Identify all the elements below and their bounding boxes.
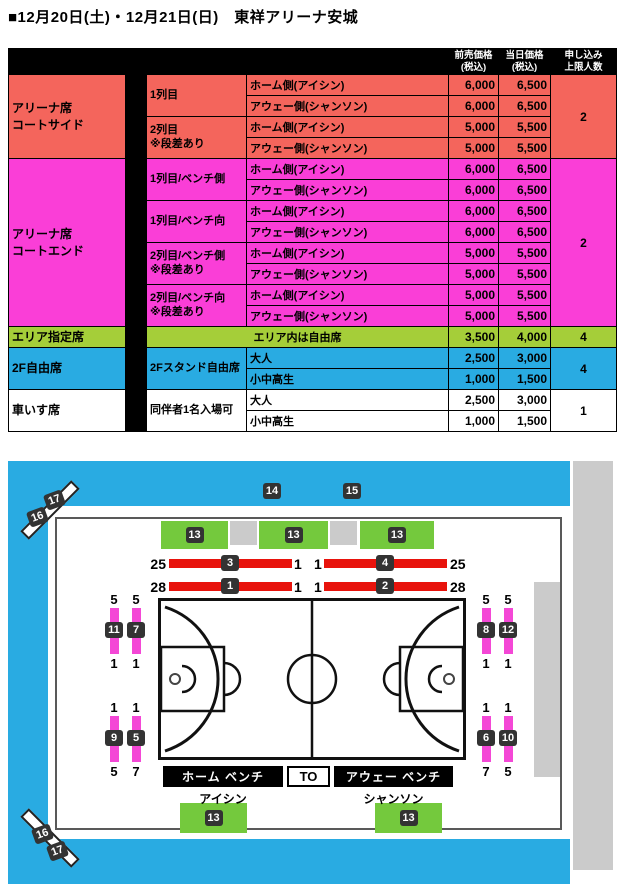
area-block-13: 13 [375, 803, 442, 833]
seat-badge-13: 13 [186, 527, 204, 543]
seat-count: 1 [314, 556, 322, 572]
stand-2f-top [8, 461, 570, 506]
seat-count: 1 [497, 656, 519, 671]
home-team-name: アイシン [163, 790, 283, 807]
seat-badge-6: 6 [477, 730, 495, 746]
seat-badge-11: 11 [105, 622, 123, 638]
area-block-13: 13 [161, 521, 228, 549]
basketball-court [158, 598, 466, 760]
seat-badge-1: 1 [221, 578, 239, 594]
gray-spacer [230, 521, 257, 545]
seat-badge-13: 13 [400, 810, 418, 826]
seat-count: 5 [497, 764, 519, 779]
seat-count: 1 [497, 700, 519, 715]
area-block-13: 13 [180, 803, 247, 833]
area-block-13: 13 [259, 521, 328, 549]
seat-badge-3: 3 [221, 555, 239, 571]
seat-count: 7 [475, 764, 497, 779]
seat-count: 5 [103, 592, 125, 607]
seat-count: 1 [314, 579, 322, 595]
seat-badge-13: 13 [388, 527, 406, 543]
area-block-13: 13 [360, 521, 434, 549]
gray-spacer [330, 521, 357, 545]
stand-2f-bottom [8, 839, 570, 884]
seat-count: 1 [125, 700, 147, 715]
seat-count: 5 [103, 764, 125, 779]
courtend-column-11: 5 11 1 [103, 592, 125, 672]
seat-count: 1 [475, 656, 497, 671]
courtend-column-9: 1 9 5 [103, 700, 125, 780]
right-stand-strip [573, 461, 613, 870]
seat-count: 5 [475, 592, 497, 607]
seat-badge-7: 7 [127, 622, 145, 638]
seat-count: 1 [294, 556, 302, 572]
home-bench: ホーム ベンチ [163, 766, 283, 787]
courtend-column-7: 5 7 1 [125, 592, 147, 672]
seat-count: 1 [294, 579, 302, 595]
seat-badge-13: 13 [285, 527, 303, 543]
away-team-name: シャンソン [334, 790, 453, 807]
seat-badge-5: 5 [127, 730, 145, 746]
seat-count: 25 [450, 556, 466, 572]
seat-badge-10: 10 [499, 730, 517, 746]
courtend-column-5: 1 5 7 [125, 700, 147, 780]
seating-info-page: ■12月20日(土)・12月21日(日) 東祥アリーナ安城 前売価格 (税込) … [0, 0, 624, 893]
seat-badge-9: 9 [105, 730, 123, 746]
seat-count: 28 [141, 579, 166, 595]
seat-badge-2: 2 [376, 578, 394, 594]
seat-badge-15: 15 [343, 483, 361, 499]
seat-count: 1 [125, 656, 147, 671]
seat-count: 1 [103, 656, 125, 671]
courtend-column-6: 1 6 7 [475, 700, 497, 780]
away-bench: アウェー ベンチ [334, 766, 453, 787]
courtend-column-10: 1 10 5 [497, 700, 519, 780]
seat-badge-14: 14 [263, 483, 281, 499]
seat-count: 25 [141, 556, 166, 572]
seat-count: 5 [497, 592, 519, 607]
arena-map: 14 15 13 13 13 25 3 1 1 4 25 28 1 1 1 2 [0, 0, 624, 893]
seat-count: 1 [103, 700, 125, 715]
seat-count: 28 [450, 579, 466, 595]
seat-count: 7 [125, 764, 147, 779]
courtend-column-12: 5 12 1 [497, 592, 519, 672]
courtend-column-8: 5 8 1 [475, 592, 497, 672]
table-officials-box: TO [287, 766, 330, 787]
seat-badge-4: 4 [376, 555, 394, 571]
seat-badge-12: 12 [499, 622, 517, 638]
seat-badge-13: 13 [205, 810, 223, 826]
inner-gray-block [534, 582, 560, 777]
seat-badge-8: 8 [477, 622, 495, 638]
seat-count: 1 [475, 700, 497, 715]
